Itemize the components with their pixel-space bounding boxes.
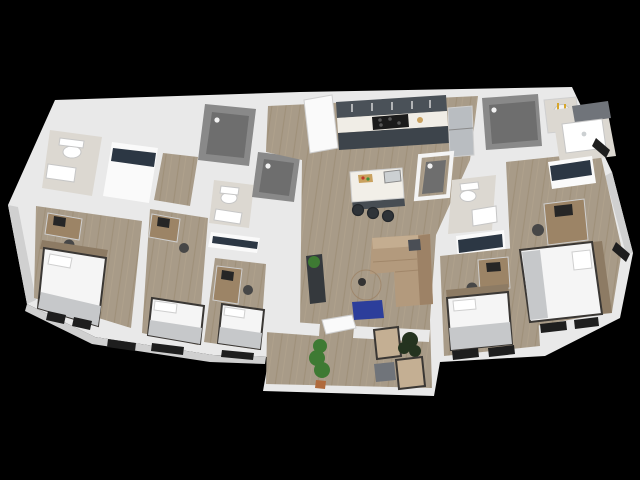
dark-plant-3 xyxy=(409,345,421,357)
toilet-3-tank xyxy=(460,182,479,191)
shower2-head-icon xyxy=(265,163,270,168)
burner-2 xyxy=(388,117,392,121)
floorplan-svg: 3D isometric rendering of a five bedroom… xyxy=(0,0,640,480)
bed5-pillow xyxy=(572,250,592,270)
tall-plant-low xyxy=(314,362,330,378)
board-item-red xyxy=(361,176,364,179)
desk-chair-5 xyxy=(532,224,544,236)
entry-door xyxy=(304,95,338,153)
refrigerator xyxy=(448,106,474,157)
shower3-head-icon xyxy=(427,163,432,168)
toilet-2-tank xyxy=(220,186,239,195)
shower1-floor xyxy=(206,112,249,158)
island-sink xyxy=(384,170,401,183)
plant-pot xyxy=(315,380,326,389)
burner-3 xyxy=(379,123,383,127)
shower2-floor xyxy=(259,159,294,196)
burner-1 xyxy=(378,118,382,122)
sink-3 xyxy=(472,206,497,226)
shower1-head-icon xyxy=(214,117,219,122)
toilet-3 xyxy=(460,191,476,202)
armchair-2 xyxy=(396,357,425,389)
burner-4 xyxy=(397,121,401,125)
floorplan-image: 3D isometric rendering of a five bedroom… xyxy=(0,0,640,480)
monitor-5 xyxy=(554,204,573,217)
monitor-4 xyxy=(486,262,501,272)
table-items xyxy=(358,278,366,286)
blue-rug xyxy=(352,300,384,320)
bar-stool-3 xyxy=(383,211,394,222)
ottoman xyxy=(374,362,396,382)
cutting-board xyxy=(358,174,373,183)
desk-chair-3 xyxy=(243,285,253,295)
console-plant xyxy=(308,256,320,268)
bed4-pillow xyxy=(453,299,476,311)
vanity-faucet xyxy=(582,132,587,137)
bar-stool-1 xyxy=(353,205,364,216)
armchair-1 xyxy=(374,327,401,359)
sofa-pillow xyxy=(408,239,421,251)
desk-chair-2 xyxy=(179,243,189,253)
board-item-green xyxy=(366,177,369,180)
shower4-floor xyxy=(489,101,538,144)
shower4-head-icon xyxy=(491,107,496,112)
dark-plant-2 xyxy=(398,342,410,354)
bar-stool-2 xyxy=(368,208,379,219)
fruit-bowl xyxy=(417,117,423,123)
